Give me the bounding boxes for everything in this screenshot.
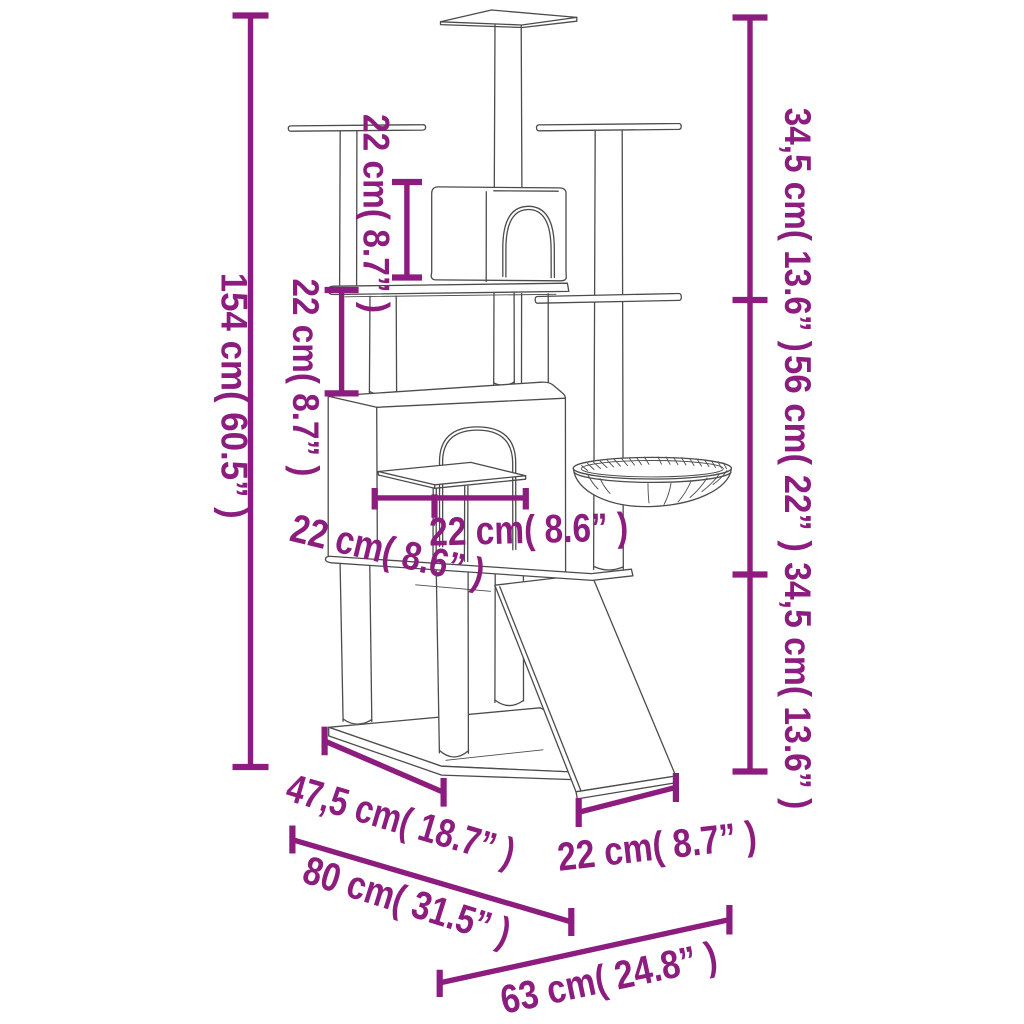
svg-text:34,5 cm( 13.6” ): 34,5 cm( 13.6” )	[777, 562, 818, 809]
svg-text:22 cm( 8.7” ): 22 cm( 8.7” )	[285, 279, 326, 477]
svg-text:154 cm( 60.5” ): 154 cm( 60.5” )	[214, 273, 255, 519]
svg-text:34,5 cm( 13.6” ): 34,5 cm( 13.6” )	[777, 108, 818, 352]
svg-text:22 cm( 8.7” ): 22 cm( 8.7” )	[356, 114, 397, 313]
svg-text:56 cm( 22” ): 56 cm( 22” )	[777, 355, 818, 552]
